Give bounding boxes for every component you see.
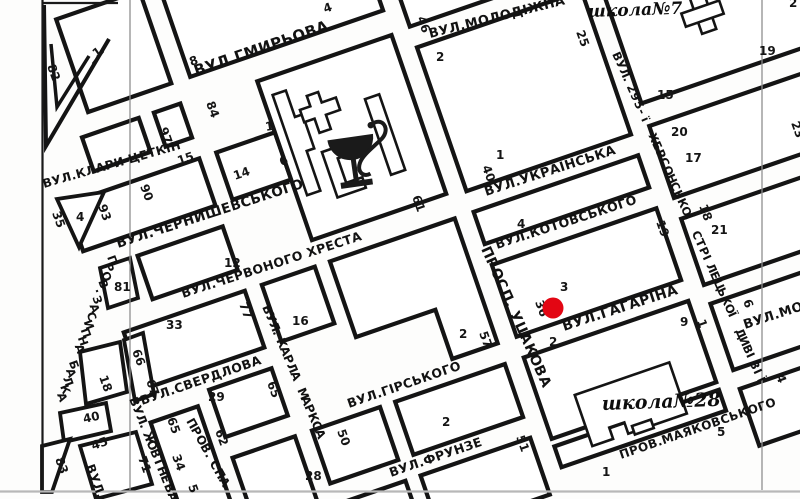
house-number: 29 bbox=[208, 390, 225, 404]
school-label-28: школа№28 bbox=[601, 389, 721, 415]
house-number: 15 bbox=[657, 88, 674, 102]
city-block bbox=[80, 342, 127, 404]
house-number: 20 bbox=[671, 125, 688, 139]
house-number: 12 bbox=[224, 256, 241, 270]
house-number: 33 bbox=[166, 318, 183, 332]
house-number: 19 bbox=[759, 44, 776, 58]
house-number: 9 bbox=[680, 315, 688, 329]
school-label-7: школа№7 bbox=[587, 0, 682, 22]
house-number: 81 bbox=[114, 280, 131, 294]
house-number: 21 bbox=[711, 223, 728, 237]
house-number: 2 bbox=[459, 327, 467, 341]
house-number: 2 bbox=[789, 0, 797, 10]
house-number: 1 bbox=[496, 148, 504, 162]
house-number: 3 bbox=[560, 280, 568, 294]
house-number: 17 bbox=[685, 151, 702, 165]
house-number: 4 bbox=[517, 217, 525, 231]
location-marker bbox=[543, 298, 564, 319]
house-number: 2 bbox=[442, 415, 450, 429]
house-number: 2 bbox=[436, 50, 444, 64]
city-map[interactable]: ВУЛ.ГМИРЬОВАВУЛ.МОЛОДІЖНАВУЛ.КЛАРИ ЦЕТКІ… bbox=[0, 0, 800, 499]
house-number: 2 bbox=[549, 335, 557, 349]
house-number: 28 bbox=[305, 469, 322, 483]
map-viewport: ВУЛ.ГМИРЬОВАВУЛ.МОЛОДІЖНАВУЛ.КЛАРИ ЦЕТКІ… bbox=[0, 0, 800, 499]
house-number: 1 bbox=[602, 465, 610, 479]
house-number: 5 bbox=[717, 425, 725, 439]
house-number: 4 bbox=[76, 210, 84, 224]
house-number: 16 bbox=[292, 314, 309, 328]
